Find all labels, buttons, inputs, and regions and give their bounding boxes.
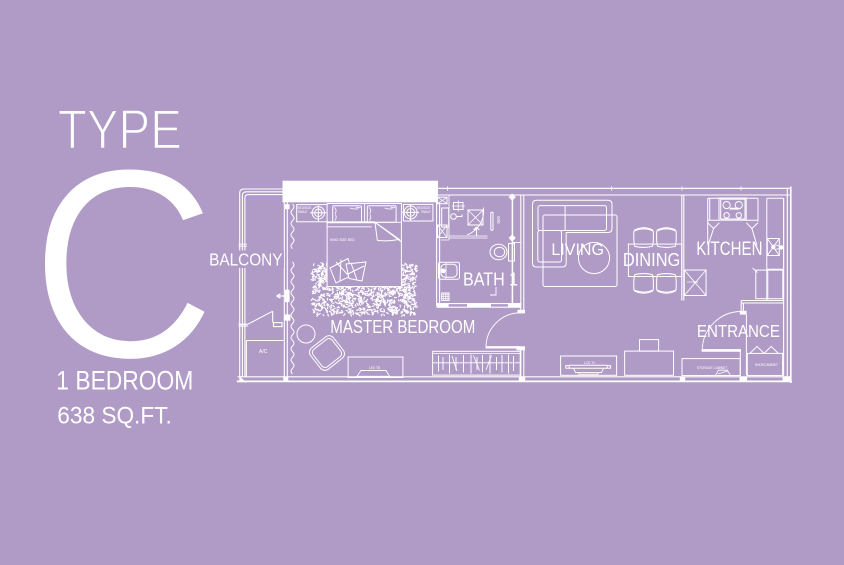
- svg-text:SHOECABINET: SHOECABINET: [755, 363, 778, 367]
- svg-text:BALCONY: BALCONY: [209, 249, 283, 269]
- svg-text:COOKER: COOKER: [687, 280, 698, 284]
- svg-text:900: 900: [496, 216, 501, 224]
- svg-text:MASTER BEDROOM: MASTER BEDROOM: [330, 317, 475, 338]
- svg-text:BATH 1: BATH 1: [463, 269, 518, 290]
- svg-text:DINING: DINING: [623, 250, 680, 270]
- svg-text:TABLE: TABLE: [421, 210, 431, 214]
- svg-text:LIVING: LIVING: [551, 240, 604, 259]
- svg-text:A/C: A/C: [259, 349, 268, 355]
- svg-text:638 SQ.FT.: 638 SQ.FT.: [57, 403, 172, 430]
- svg-text:TABLE: TABLE: [298, 210, 308, 214]
- svg-text:STORAGE CABINET: STORAGE CABINET: [697, 366, 727, 370]
- svg-text:KING SIZE BED: KING SIZE BED: [330, 238, 355, 242]
- svg-text:ENTRANCE: ENTRANCE: [697, 321, 780, 341]
- svg-text:KITCHEN: KITCHEN: [696, 239, 762, 260]
- svg-text:1 BEDROOM: 1 BEDROOM: [56, 365, 193, 395]
- svg-text:LCD TV: LCD TV: [584, 361, 596, 365]
- svg-text:LED TB: LED TB: [369, 366, 380, 370]
